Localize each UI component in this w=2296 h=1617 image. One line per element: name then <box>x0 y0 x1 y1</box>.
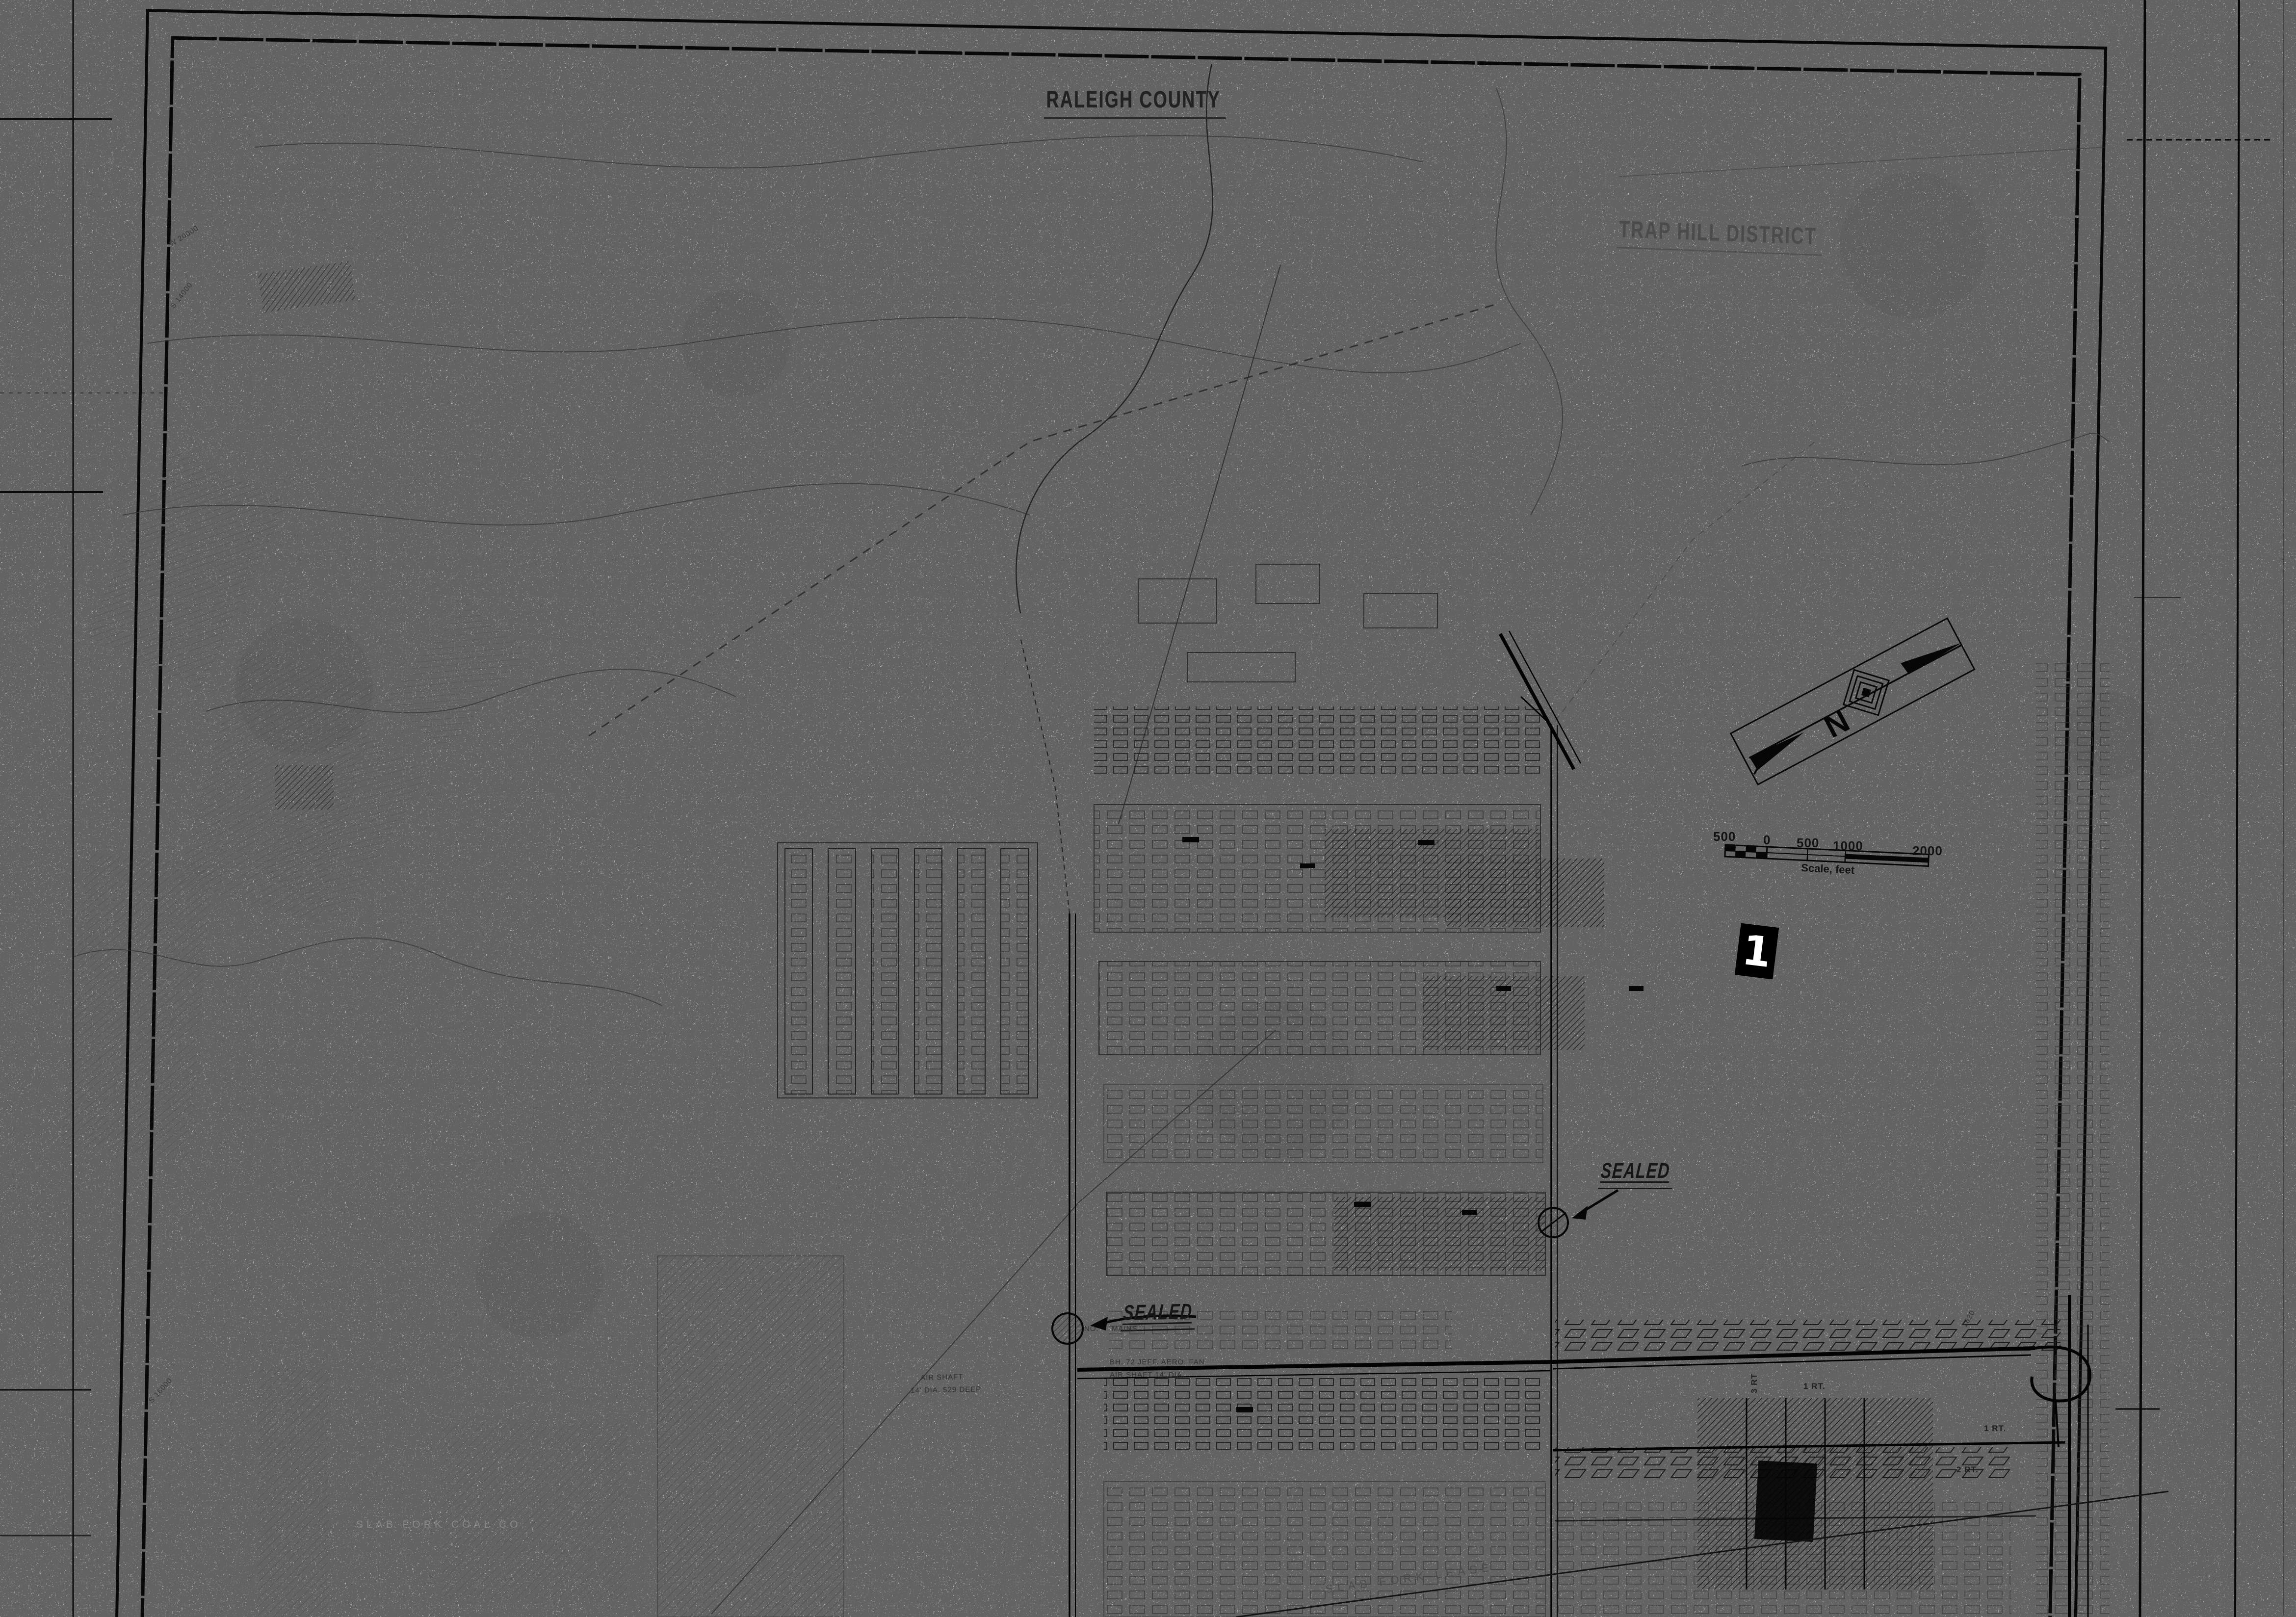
scale-caption: Scale, feet <box>1801 861 1855 877</box>
note-airshaft-line1: AIR SHAFT <box>920 1373 964 1382</box>
scale-tick-500-left: 500 <box>1713 829 1736 844</box>
north-letter: N <box>1819 703 1855 745</box>
county-title: RALEIGH COUNTY <box>1044 86 1226 119</box>
note-airshaft-line2: 14' DIA. 529 DEEP <box>911 1385 981 1395</box>
scale-tick-2000: 2000 <box>1912 843 1943 859</box>
scale-tick-1000: 1000 <box>1833 838 1863 854</box>
company-name: SLAB FORK COAL CO. <box>356 1519 527 1531</box>
note-fan-line2: AIR SHAFT 14' DIA. <box>1110 1371 1185 1379</box>
sheet-number: 1 <box>1740 929 1774 973</box>
left-fold-line <box>0 0 164 1617</box>
north-arrow: N <box>1731 618 1976 785</box>
note-no: NO. <box>1084 1325 1099 1333</box>
note-fan-line1: BH. 72 JEFF. AERO. FAN <box>1110 1358 1205 1366</box>
route-label-2rt: 2 RT. <box>1957 1465 1979 1475</box>
note-mains: MAINS <box>1112 1325 1138 1333</box>
route-label-1rt-b: 1 RT. <box>1984 1424 2006 1434</box>
scale-tick-0: 0 <box>1763 833 1771 848</box>
sealed-label-1: SEALED <box>1598 1159 1674 1189</box>
scanned-mine-map-sheet: N <box>0 0 2296 1617</box>
mine-workings <box>657 564 2110 1617</box>
right-sheet-rules <box>2115 0 2284 1617</box>
route-label-1rt-a: 1 RT. <box>1803 1382 1826 1391</box>
scale-tick-500: 500 <box>1797 835 1819 851</box>
route-label-3rt: 3 RT <box>1749 1373 1759 1393</box>
sheet-number-stamp: 1 <box>1735 923 1779 980</box>
